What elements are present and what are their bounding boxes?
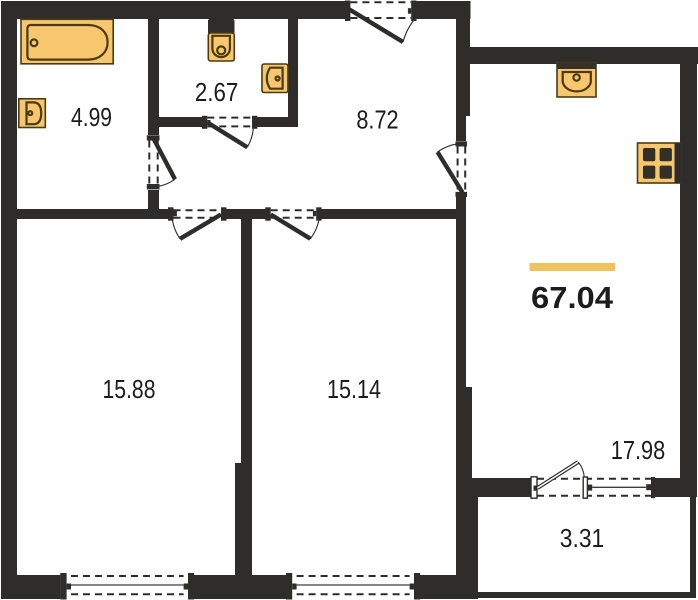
svg-text:4.99: 4.99 bbox=[71, 102, 112, 132]
svg-text:17.98: 17.98 bbox=[611, 435, 666, 465]
svg-text:8.72: 8.72 bbox=[356, 105, 398, 135]
svg-text:67.04: 67.04 bbox=[531, 280, 614, 315]
svg-text:15.14: 15.14 bbox=[327, 374, 381, 404]
svg-text:15.88: 15.88 bbox=[103, 374, 156, 404]
svg-text:3.31: 3.31 bbox=[560, 523, 604, 553]
svg-text:2.67: 2.67 bbox=[195, 77, 239, 107]
